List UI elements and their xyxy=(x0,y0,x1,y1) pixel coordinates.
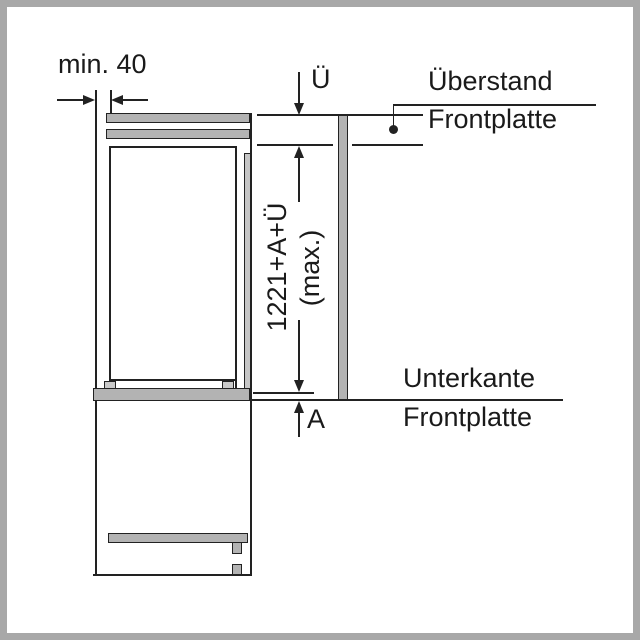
a-symbol-label: A xyxy=(307,403,325,435)
panel-length-max-label: (max.) xyxy=(294,230,326,307)
ue-arrow-shaft xyxy=(298,72,300,103)
min-gap-arrow-left-head xyxy=(83,95,95,105)
panel-length-arrow-bottom-head xyxy=(294,380,304,392)
ueberstand-label-line2: Frontplatte xyxy=(428,103,557,135)
fixing-block-upper xyxy=(232,542,242,554)
ueberstand-label-line1: Überstand xyxy=(428,65,553,97)
unterkante-label-line2: Frontplatte xyxy=(403,401,532,433)
min-gap-arrow-right-shaft xyxy=(123,99,148,101)
panel-length-arrow-top-shaft xyxy=(298,157,300,202)
min-gap-arrow-left-shaft xyxy=(57,99,84,101)
cabinet-bottom-line xyxy=(93,574,251,577)
panel-length-label: 1221+A+Ü xyxy=(261,202,293,331)
plinth-panel xyxy=(93,388,250,401)
min-gap-arrow-right-head xyxy=(111,95,123,105)
ue-arrow-head xyxy=(294,103,304,115)
a-arrow-shaft xyxy=(298,412,300,437)
appliance-top-reference-line-right xyxy=(352,144,423,146)
ueberstand-leader-dot xyxy=(389,125,398,134)
min-gap-label: min. 40 xyxy=(58,48,147,80)
ueberstand-leader-line xyxy=(393,105,395,126)
front-panel xyxy=(338,115,348,400)
appliance-body xyxy=(109,146,237,381)
cabinet-right-edge xyxy=(250,113,252,576)
niche-wall-line xyxy=(95,90,97,576)
ue-symbol-label: Ü xyxy=(311,63,331,95)
panel-length-arrow-bottom-shaft xyxy=(298,320,300,381)
lower-rail-panel xyxy=(108,533,248,543)
top-panel-bar-upper xyxy=(106,113,250,123)
unterkante-label-line1: Unterkante xyxy=(403,362,535,394)
installation-diagram: min. 40 Ü Überstand Frontplatte 1221+A+Ü… xyxy=(0,0,640,640)
top-panel-bar-lower xyxy=(106,129,250,139)
appliance-bottom-reference-line xyxy=(253,392,314,394)
